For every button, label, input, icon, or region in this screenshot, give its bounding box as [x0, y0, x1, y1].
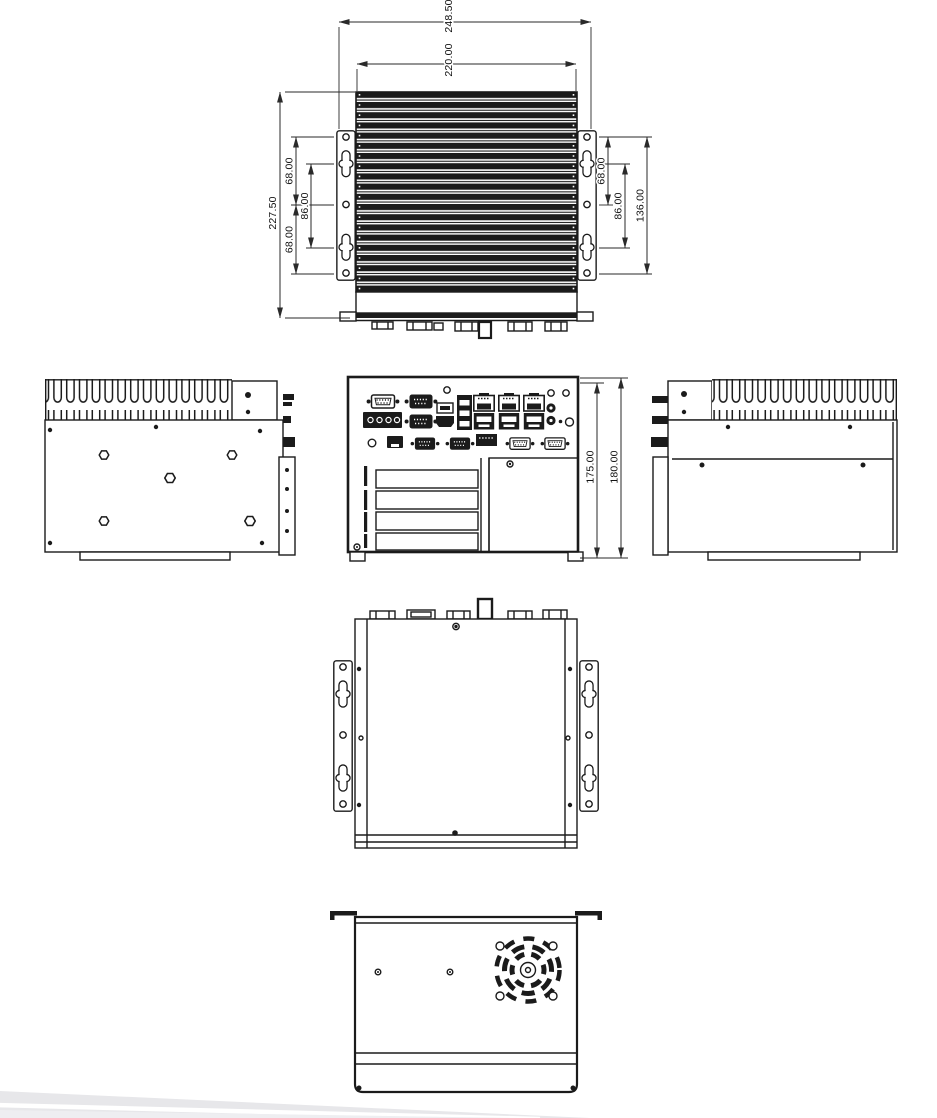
- hex-nut: [99, 451, 109, 459]
- top-connector-silhouettes: [372, 322, 567, 338]
- serial-port: [367, 395, 400, 408]
- fan-screw-hole: [549, 992, 557, 1000]
- serial-port: [506, 438, 535, 449]
- side-step-block: [668, 381, 712, 420]
- edge-connector: [652, 396, 668, 403]
- screw-dot: [48, 428, 52, 432]
- edge-connector: [283, 437, 295, 447]
- screw-dot: [260, 541, 264, 545]
- screw-dot: [681, 391, 687, 397]
- top-view: 248.50 220.00 227.50 68.00 86.00 68.00 6…: [267, 0, 652, 338]
- fan-screw-hole: [496, 942, 504, 950]
- edge-connector: [283, 394, 294, 400]
- technical-drawing-page: 248.50 220.00 227.50 68.00 86.00 68.00 6…: [0, 0, 937, 1118]
- fan-screw-hole: [496, 992, 504, 1000]
- hex-nut: [99, 517, 109, 525]
- side-panel: [45, 420, 283, 552]
- usb-port: [437, 403, 453, 413]
- side-panel: [668, 420, 897, 552]
- screw-dot: [285, 529, 289, 533]
- rear-view: 175.00 180.00: [348, 377, 628, 561]
- right-side-view: [651, 379, 897, 560]
- led-dot: [559, 420, 563, 424]
- foot-right: [568, 552, 583, 561]
- watermark-swoosh: [0, 1091, 590, 1118]
- mounting-bracket-left: [337, 131, 355, 280]
- screw-dot: [726, 425, 730, 429]
- screw-dot: [452, 830, 458, 836]
- dim-left-bottom-pitch: 68.00: [284, 226, 296, 253]
- side-tab-right: [577, 312, 593, 321]
- power-terminal-block: [363, 412, 402, 428]
- screw-dot: [285, 487, 289, 491]
- heatsink-fins-side: [712, 379, 897, 420]
- screw-dot: [285, 468, 289, 472]
- hex-nut: [245, 517, 255, 526]
- screw-dot: [700, 463, 705, 468]
- ethernet-usb-combo: [474, 393, 494, 430]
- display-port: [387, 436, 403, 448]
- ethernet-usb-combo: [524, 393, 544, 430]
- power-switch: [478, 599, 492, 619]
- screw-dot: [848, 425, 852, 429]
- heatsink-fins-top: [356, 92, 577, 292]
- chassis-front-band: [356, 292, 577, 313]
- rear-view-dimensions: 175.00 180.00: [580, 378, 628, 558]
- bottom-mounting-view: [334, 599, 598, 848]
- screw-dot: [154, 425, 158, 429]
- screw-dot: [258, 429, 262, 433]
- mounting-bracket-right: [580, 661, 598, 811]
- top-edge-connectors: [370, 599, 567, 619]
- power-switch-top: [479, 322, 491, 338]
- side-tab-left: [340, 312, 356, 321]
- side-step-block: [232, 381, 277, 420]
- dim-overall-depth: 227.50: [267, 196, 279, 229]
- screw-dot: [246, 410, 250, 414]
- screw-dot: [48, 541, 52, 545]
- screw-dot: [861, 463, 866, 468]
- front-bottom-view: [330, 911, 602, 1092]
- serial-port: [541, 438, 570, 449]
- slot-bracket-strip: [653, 457, 668, 555]
- screw-dot: [285, 509, 289, 513]
- dim-right-hole-pitch: 68.00: [596, 157, 608, 184]
- dim-right-outer-pitch: 136.00: [635, 189, 647, 222]
- dim-overall-width: 248.50: [443, 0, 455, 33]
- hex-nut: [227, 451, 237, 459]
- dim-overall-height: 180.00: [609, 450, 621, 483]
- base-foot: [708, 552, 860, 560]
- screw-dot: [357, 803, 361, 807]
- mounting-bracket-right: [578, 131, 596, 280]
- ethernet-usb-combo: [499, 393, 519, 430]
- screw-dot: [357, 667, 361, 671]
- edge-connector: [651, 437, 668, 447]
- screw-dot: [682, 410, 686, 414]
- dim-left-slot-pitch: 86.00: [299, 192, 311, 219]
- left-side-view: [45, 379, 295, 560]
- screw-dot: [568, 667, 572, 671]
- chassis-bottom-plate: [355, 619, 577, 848]
- pin-header: [476, 434, 497, 446]
- edge-connector: [283, 416, 291, 423]
- dim-chassis-height: 175.00: [585, 450, 597, 483]
- screw-dot: [568, 803, 572, 807]
- hdmi-port: [436, 416, 454, 427]
- base-foot: [80, 552, 230, 560]
- fan-screw-hole: [549, 942, 557, 950]
- dim-body-width: 220.00: [443, 43, 455, 76]
- hex-nut: [165, 474, 175, 483]
- dimension-drawing: 248.50 220.00 227.50 68.00 86.00 68.00 6…: [0, 0, 937, 1118]
- edge-connector: [283, 402, 292, 406]
- foot-left: [350, 552, 365, 561]
- chassis-edge-band: [356, 313, 577, 318]
- edge-connector: [652, 416, 668, 424]
- heatsink-fins-side: [45, 379, 232, 420]
- usb-stack: [457, 395, 472, 430]
- mounting-bracket-left: [334, 661, 352, 811]
- dim-left-top-pitch: 68.00: [284, 157, 296, 184]
- screw-dot: [245, 392, 251, 398]
- dim-right-slot-pitch: 86.00: [613, 192, 625, 219]
